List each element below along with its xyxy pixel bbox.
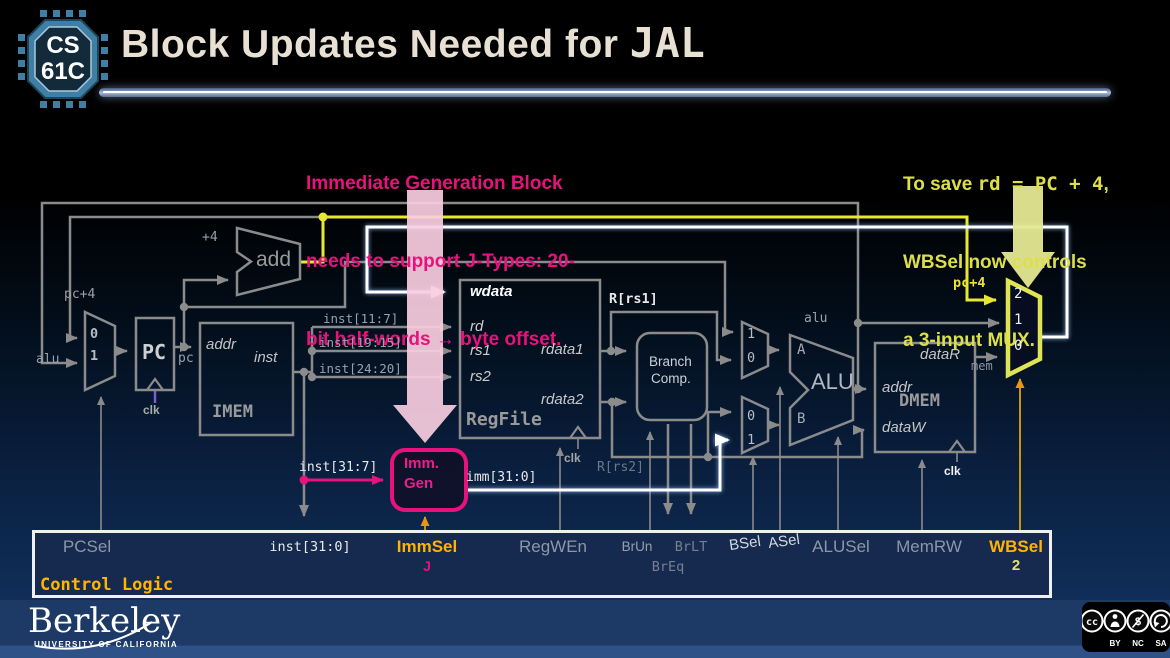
regfile-block-label: RegFile: [466, 411, 542, 430]
title-underline: [99, 88, 1111, 97]
b-mux-0: 0: [747, 409, 755, 423]
alu-block-label: ALU: [811, 370, 854, 393]
r-rs2-wire-label: R[rs2]: [597, 461, 644, 475]
memrw-signal: MemRW: [896, 538, 962, 556]
regfile-wdata-port: wdata: [470, 284, 513, 300]
title-code: JAL: [630, 19, 706, 67]
cc-nc-label: NC: [1132, 639, 1144, 648]
alusel-signal: ALUSel: [812, 538, 870, 556]
pc-plus4-wb-wire-label: pc+4: [953, 276, 986, 290]
immgen-label-line1: Imm.: [404, 456, 439, 472]
page-title: Block Updates Needed for JAL: [121, 22, 705, 66]
by-person-icon: [1105, 611, 1126, 632]
wbsel-value: 2: [1012, 558, 1020, 574]
brlt-signal: BrLT: [675, 540, 708, 554]
branch-comp-label-line1: Branch: [649, 355, 692, 369]
cc-by-label: BY: [1109, 639, 1120, 648]
inst-24-20-wire-label: inst[24:20]: [319, 362, 402, 375]
dmem-clock-triangle: [949, 441, 965, 452]
immgen-note-line1: Immediate Generation Block: [306, 171, 575, 197]
inst-31-0-signal: inst[31:0]: [269, 540, 350, 554]
pc-register-label: PC: [142, 342, 166, 363]
dmem-dataR-port: dataR: [920, 347, 960, 363]
immsel-value: J: [423, 559, 431, 574]
regfile-rs2-port: rs2: [470, 369, 491, 385]
berkeley-subtitle: UNIVERSITY OF CALIFORNIA: [34, 640, 178, 649]
regwen-signal: RegWEn: [519, 538, 587, 556]
mem-wire-label: mem: [971, 360, 993, 373]
control-logic-title: Control Logic: [40, 577, 173, 595]
brun-signal: BrUn: [622, 540, 653, 554]
title-text: Block Updates Needed for: [121, 23, 630, 66]
imem-inst-port: inst: [254, 350, 277, 366]
dmem-block-label: DMEM: [899, 393, 940, 411]
wbsel-note-line1: To save rd = PC + 4,: [903, 171, 1109, 198]
alu-b-port: B: [797, 412, 805, 427]
imm-31-0-wire-label: imm[31:0]: [466, 471, 536, 485]
berkeley-swoosh: [0, 600, 170, 658]
dmem-dataW-port: dataW: [882, 420, 925, 436]
slide: CS 61C Block Updates Needed for JAL Imme…: [0, 0, 1170, 658]
pc-plus4-wire-label: pc+4: [64, 288, 95, 302]
immgen-note-line2: needs to support J-Types: 20-: [306, 249, 575, 275]
logo-line2: 61C: [41, 58, 85, 85]
pc-out-wire-label: pc: [178, 352, 194, 366]
regfile-clk-label: clk: [564, 452, 581, 465]
magenta-junction-dot: [300, 476, 309, 485]
pc-clock-triangle: [147, 379, 163, 390]
alu-in-wire-label: alu: [36, 353, 59, 367]
imem-addr-port: addr: [206, 337, 236, 353]
branch-comp-label-line2: Comp.: [651, 372, 691, 386]
regfile-rdata2-port: rdata2: [541, 392, 584, 408]
wb-mux-1: 1: [1014, 313, 1022, 328]
wb-mux-0: 0: [1014, 339, 1022, 354]
alu-a-port: A: [797, 343, 805, 358]
b-mux-1: 1: [747, 433, 755, 447]
r-rs1-wire-label: R[rs1]: [609, 292, 658, 306]
add-block-label: add: [256, 249, 291, 271]
breq-signal: BrEq: [652, 560, 685, 574]
plus4-label: +4: [202, 231, 218, 245]
wbsel-note-line2: WBSel now controls: [903, 250, 1109, 276]
regfile-clock-triangle: [570, 427, 586, 438]
svg-text:cc: cc: [1086, 617, 1098, 628]
logo-line1: CS: [46, 32, 79, 59]
alu-out-wire-label: alu: [804, 312, 827, 326]
pc-clk-label: clk: [143, 404, 160, 417]
cc-sa-label: SA: [1155, 639, 1166, 648]
cs61c-logo-icon: CS 61C: [14, 6, 114, 114]
inst-31-7-wire-label: inst[31:7]: [299, 461, 377, 475]
regfile-rd-port: rd: [470, 319, 483, 335]
dmem-clk-label: clk: [944, 465, 961, 478]
pcsel-signal: PCSel: [63, 538, 111, 556]
footer-bar: Berkeley UNIVERSITY OF CALIFORNIA cc $: [0, 600, 1170, 658]
pc-mux-0: 0: [90, 327, 98, 341]
regfile-rdata1-port: rdata1: [541, 342, 584, 358]
immsel-signal: ImmSel: [397, 538, 457, 556]
imem-block-label: IMEM: [212, 404, 253, 422]
wbsel-signal: WBSel: [989, 538, 1043, 556]
wb-mux-2: 2: [1014, 287, 1022, 302]
regfile-rs1-port: rs1: [470, 343, 491, 359]
immgen-label-line2: Gen: [404, 476, 433, 492]
inst-11-7-wire-label: inst[11:7]: [323, 312, 398, 325]
cc-license-badge: cc $ BY NC SA: [1082, 602, 1170, 652]
a-mux-0: 0: [747, 351, 755, 365]
a-mux-1: 1: [747, 327, 755, 341]
inst-19-15-wire-label: inst[19:15]: [319, 336, 402, 349]
pc-mux-1: 1: [90, 349, 98, 363]
